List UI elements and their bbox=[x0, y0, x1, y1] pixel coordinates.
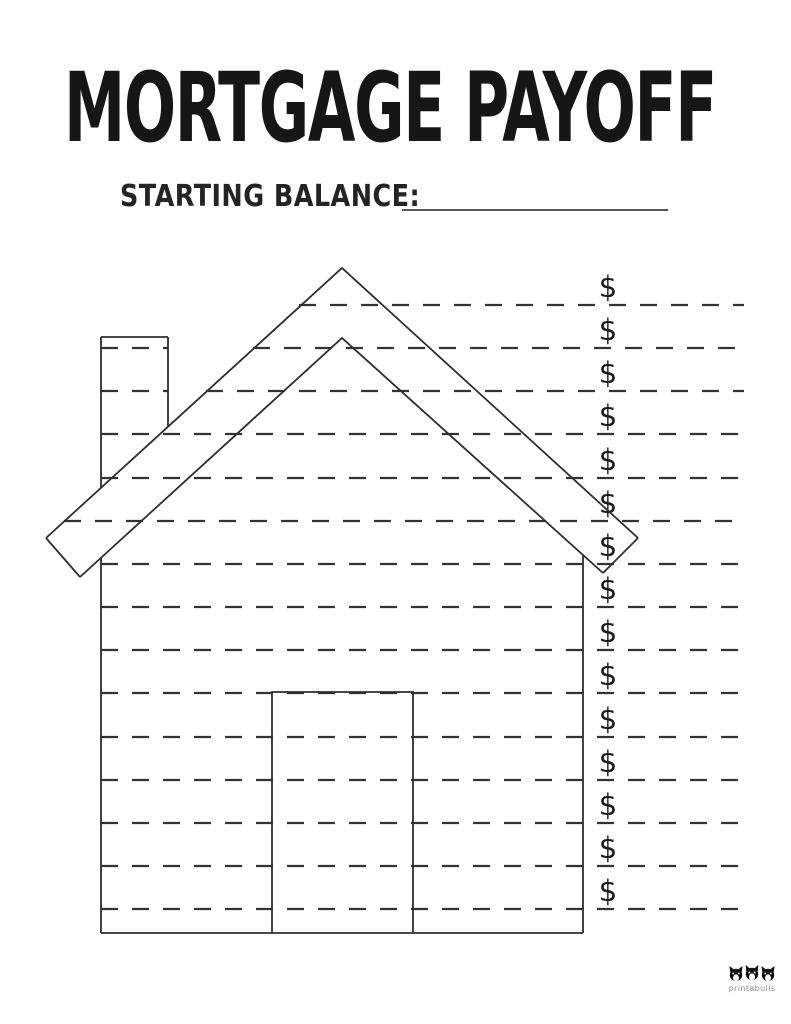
currency-symbol-label: $ bbox=[599, 745, 617, 779]
printabulls-logo: printabulls bbox=[728, 965, 776, 993]
currency-symbol-column: $ $ $ $ $ $ $ $ $ $ $ $ $ $ $ bbox=[599, 270, 617, 908]
currency-symbol-label: $ bbox=[599, 313, 617, 347]
door-outline bbox=[272, 692, 413, 933]
currency-symbol-label: $ bbox=[599, 443, 617, 477]
house-outline bbox=[46, 268, 638, 933]
payment-write-lines bbox=[64, 305, 744, 909]
brand-text: printabulls bbox=[728, 985, 776, 993]
currency-symbol-label: $ bbox=[599, 356, 617, 390]
roof-outline bbox=[46, 268, 638, 577]
currency-symbol-label: $ bbox=[599, 270, 617, 304]
mortgage-payoff-worksheet: MORTGAGE PAYOFF STARTING BALANCE: bbox=[0, 0, 791, 1024]
bulldog-icons bbox=[729, 965, 775, 985]
currency-symbol-label: $ bbox=[599, 658, 617, 692]
currency-symbol-label: $ bbox=[599, 831, 617, 865]
bulldog-icon bbox=[762, 966, 775, 982]
house-illustration: $ $ $ $ $ $ $ $ $ $ $ $ $ $ $ bbox=[0, 0, 791, 1024]
currency-symbol-label: $ bbox=[599, 702, 617, 736]
currency-symbol-label: $ bbox=[599, 572, 617, 606]
currency-symbol-label: $ bbox=[599, 529, 617, 563]
bulldog-icon bbox=[730, 966, 743, 982]
chimney-outline bbox=[101, 337, 168, 488]
currency-symbol-label: $ bbox=[599, 486, 617, 520]
currency-symbol-label: $ bbox=[599, 788, 617, 822]
currency-symbol-label: $ bbox=[599, 615, 617, 649]
currency-symbol-label: $ bbox=[599, 874, 617, 908]
walls-outline bbox=[101, 555, 583, 933]
currency-symbol-label: $ bbox=[599, 399, 617, 433]
bulldog-icon bbox=[746, 965, 759, 981]
